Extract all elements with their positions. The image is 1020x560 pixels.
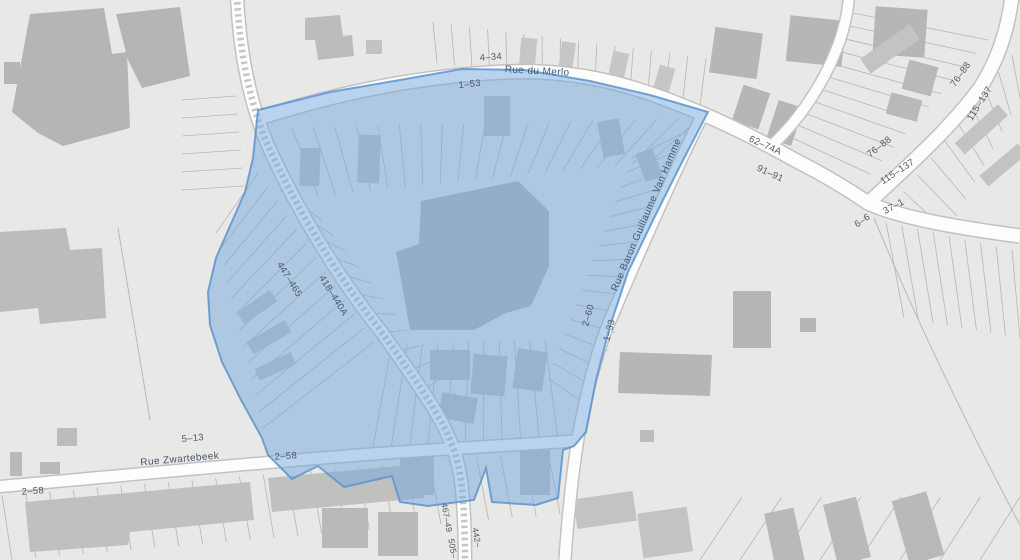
range-label-2-58-west: 2–58: [21, 485, 44, 498]
map-canvas[interactable]: Rue du Merlo Rue Baron Guillaume Van Ham…: [0, 0, 1020, 560]
range-label-5-13: 5–13: [181, 432, 204, 445]
range-label-1-53: 1–53: [458, 78, 481, 91]
range-label-2-58-east: 2–58: [274, 450, 297, 463]
range-label-4-34: 4–34: [479, 51, 502, 64]
map-svg: Rue du Merlo Rue Baron Guillaume Van Ham…: [0, 0, 1020, 560]
